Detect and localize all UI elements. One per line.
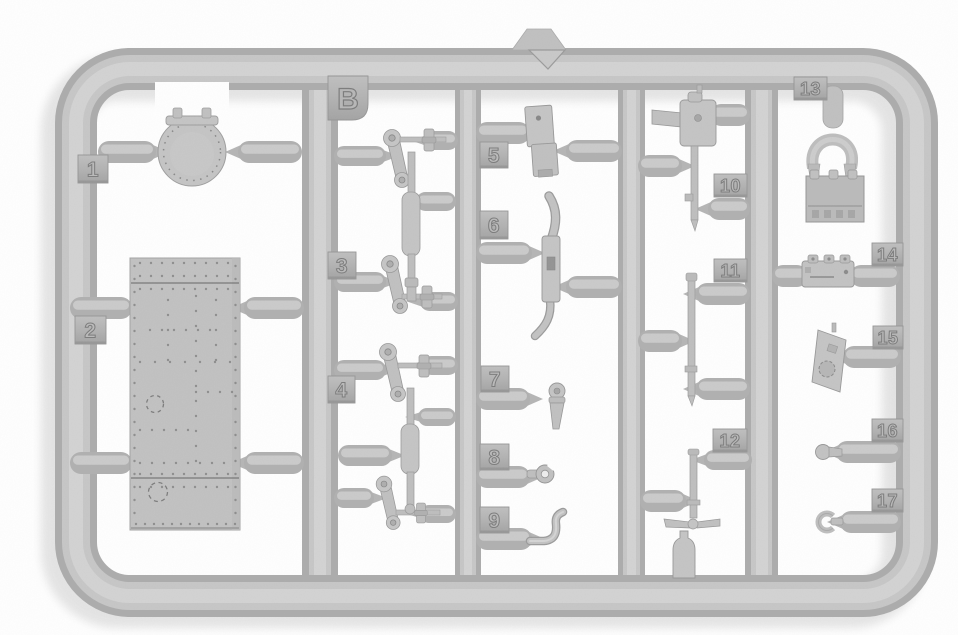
part-tag-5: 5 bbox=[480, 142, 508, 168]
rivet bbox=[205, 486, 207, 488]
rivet bbox=[161, 329, 163, 331]
rivet bbox=[139, 288, 141, 290]
part-17-hook bbox=[818, 514, 843, 531]
part-tag-6: 6 bbox=[480, 211, 508, 239]
rivet bbox=[175, 429, 177, 431]
rivet bbox=[199, 462, 201, 464]
rivet bbox=[195, 430, 197, 432]
part-tag-number: 4 bbox=[335, 379, 347, 402]
gate-stub-highlight bbox=[713, 108, 747, 117]
rivet bbox=[195, 310, 197, 312]
rivet bbox=[234, 278, 236, 280]
rivet bbox=[161, 486, 163, 488]
rivet bbox=[234, 395, 236, 397]
rivet bbox=[172, 486, 174, 488]
rivet bbox=[163, 462, 165, 464]
part-tag-number: 9 bbox=[488, 510, 500, 533]
gate-stub-highlight bbox=[643, 494, 683, 503]
rivet bbox=[205, 275, 207, 277]
rivet bbox=[195, 385, 197, 387]
rivet bbox=[234, 523, 236, 525]
rivet bbox=[133, 512, 135, 514]
rivet bbox=[216, 523, 218, 525]
rivet bbox=[161, 473, 163, 475]
gate-stub-highlight bbox=[843, 515, 898, 524]
rivet bbox=[234, 421, 236, 423]
rivet bbox=[183, 288, 185, 290]
rivet bbox=[195, 325, 197, 327]
rivet bbox=[195, 415, 197, 417]
rivet bbox=[195, 340, 197, 342]
gate-stub-highlight bbox=[641, 334, 679, 343]
rivet bbox=[198, 523, 200, 525]
gate-stub bbox=[638, 155, 695, 177]
rivet bbox=[234, 382, 236, 384]
gate-stub bbox=[231, 297, 304, 319]
rivet bbox=[151, 429, 153, 431]
rivet bbox=[133, 460, 135, 462]
rivet bbox=[150, 486, 152, 488]
rivet bbox=[133, 291, 135, 293]
runner-vertical-1 bbox=[302, 58, 338, 608]
rivet bbox=[234, 408, 236, 410]
part-tag-12: 12 bbox=[713, 429, 747, 452]
gate-stub-highlight bbox=[337, 150, 383, 158]
rivet bbox=[187, 429, 189, 431]
rivet bbox=[133, 447, 135, 449]
part-tag-number: 13 bbox=[800, 79, 821, 99]
runner-vertical-3 bbox=[618, 58, 645, 608]
sheet-label-tag: B bbox=[328, 76, 368, 120]
rivet bbox=[227, 275, 229, 277]
rivet bbox=[195, 355, 197, 357]
rivet bbox=[205, 262, 207, 264]
rivet bbox=[133, 330, 135, 332]
rivet bbox=[162, 523, 164, 525]
rivet bbox=[225, 523, 227, 525]
rivet bbox=[195, 445, 197, 447]
rivet bbox=[149, 329, 151, 331]
rivet bbox=[216, 288, 218, 290]
part-tag-16: 16 bbox=[872, 419, 903, 442]
rivet bbox=[139, 462, 141, 464]
push-rod-lower bbox=[401, 388, 419, 514]
sprue-render: 1234567891011121314151617 B bbox=[0, 0, 958, 635]
part-tag-15: 15 bbox=[873, 326, 903, 349]
gate-stub bbox=[334, 488, 387, 508]
rivet bbox=[133, 473, 135, 475]
gate-stub-highlight bbox=[569, 144, 619, 153]
rivet bbox=[167, 329, 169, 331]
rivet bbox=[133, 382, 135, 384]
rivet bbox=[185, 329, 187, 331]
rivet bbox=[133, 408, 135, 410]
rivet bbox=[234, 447, 236, 449]
rivet bbox=[207, 391, 209, 393]
gate-stub-highlight bbox=[337, 492, 371, 500]
rivet bbox=[234, 291, 236, 293]
rivet bbox=[234, 356, 236, 358]
gate-stub-highlight bbox=[101, 145, 153, 154]
rivet bbox=[139, 473, 141, 475]
rivet bbox=[234, 304, 236, 306]
rivet bbox=[216, 262, 218, 264]
rivet bbox=[167, 299, 169, 301]
rivet bbox=[234, 343, 236, 345]
rivet bbox=[133, 395, 135, 397]
rivet bbox=[173, 329, 175, 331]
gate-stub-highlight bbox=[479, 470, 527, 479]
rivet bbox=[195, 391, 197, 393]
rivet bbox=[150, 288, 152, 290]
part-tag-number: 14 bbox=[877, 245, 898, 265]
part-tag-3: 3 bbox=[328, 252, 356, 279]
rivet bbox=[234, 434, 236, 436]
gate-stub bbox=[476, 242, 545, 264]
rivet bbox=[175, 462, 177, 464]
rivet bbox=[195, 295, 197, 297]
gate-stub bbox=[231, 452, 304, 474]
part-2-plate bbox=[130, 258, 240, 530]
rivet bbox=[167, 314, 169, 316]
rivet bbox=[227, 262, 229, 264]
part-tag-2: 2 bbox=[75, 316, 106, 344]
rivet bbox=[133, 434, 135, 436]
rivet bbox=[133, 317, 135, 319]
rivet bbox=[234, 499, 236, 501]
rivet bbox=[183, 275, 185, 277]
runner-vertical-4 bbox=[745, 58, 778, 608]
part-15-gauge-plate bbox=[812, 323, 846, 392]
gate-stub-highlight bbox=[846, 350, 898, 359]
rivet bbox=[219, 391, 221, 393]
rivet bbox=[194, 288, 196, 290]
part-tag-number: 11 bbox=[720, 261, 740, 281]
gate-stub-highlight bbox=[341, 449, 389, 458]
rivet bbox=[195, 460, 197, 462]
rivet bbox=[171, 523, 173, 525]
rivet bbox=[139, 361, 141, 363]
rivet bbox=[234, 460, 236, 462]
rivet bbox=[234, 330, 236, 332]
gate-stub-highlight bbox=[699, 287, 747, 296]
gate-stub-highlight bbox=[337, 364, 383, 372]
rivet bbox=[216, 473, 218, 475]
gate-stub bbox=[638, 330, 695, 352]
rivet bbox=[133, 499, 135, 501]
rivet bbox=[133, 304, 135, 306]
rivet bbox=[234, 317, 236, 319]
rivet bbox=[169, 361, 171, 363]
rivet bbox=[144, 523, 146, 525]
clevis-part bbox=[415, 503, 428, 523]
part-13-grille bbox=[806, 86, 864, 222]
rivet bbox=[227, 288, 229, 290]
part-tag-number: 3 bbox=[336, 255, 348, 278]
part-tag-number: 15 bbox=[877, 328, 898, 348]
rivet bbox=[161, 288, 163, 290]
rivet bbox=[215, 299, 217, 301]
rivet bbox=[167, 344, 169, 346]
gate-stub-highlight bbox=[479, 246, 529, 255]
rivet bbox=[183, 486, 185, 488]
rivet bbox=[151, 462, 153, 464]
rivet bbox=[139, 486, 141, 488]
part-tag-17: 17 bbox=[872, 489, 903, 512]
rivet bbox=[133, 421, 135, 423]
rivet bbox=[229, 361, 231, 363]
rivet bbox=[234, 473, 236, 475]
part-tag-number: 12 bbox=[719, 431, 740, 451]
part-tag-number: 8 bbox=[488, 447, 500, 470]
gate-stub bbox=[695, 198, 750, 220]
clevis-part bbox=[417, 355, 431, 377]
rivet bbox=[153, 523, 155, 525]
gate-stub bbox=[338, 445, 405, 466]
gate-stub bbox=[553, 276, 622, 298]
rivet bbox=[163, 429, 165, 431]
gate-stub bbox=[225, 141, 302, 163]
part-7-knob bbox=[549, 383, 565, 429]
part-tag-number: 16 bbox=[877, 421, 898, 441]
part-6-lever-arm bbox=[535, 196, 560, 336]
rivet bbox=[215, 314, 217, 316]
rivet bbox=[223, 462, 225, 464]
rivet bbox=[154, 361, 156, 363]
part-tag-number: 2 bbox=[84, 320, 96, 343]
rivet bbox=[227, 473, 229, 475]
part-tag-14: 14 bbox=[872, 243, 903, 266]
rivet bbox=[172, 275, 174, 277]
part-tag-11: 11 bbox=[714, 259, 747, 282]
rivet bbox=[207, 523, 209, 525]
rivet bbox=[172, 288, 174, 290]
part-tag-number: 10 bbox=[720, 176, 741, 196]
part-tag-9: 9 bbox=[480, 507, 509, 533]
rivet bbox=[187, 462, 189, 464]
part-14-hinge-block bbox=[802, 255, 854, 287]
rivet bbox=[215, 359, 217, 361]
part-tag-13: 13 bbox=[794, 77, 827, 100]
runner-vertical-2 bbox=[455, 58, 481, 608]
rivet bbox=[161, 275, 163, 277]
rivet bbox=[139, 275, 141, 277]
gate-stub-highlight bbox=[73, 456, 129, 465]
part-tag-1: 1 bbox=[78, 155, 108, 183]
gate-stub-highlight bbox=[247, 301, 301, 310]
part-tag-7: 7 bbox=[481, 366, 509, 392]
part-tag-number: 1 bbox=[87, 159, 99, 182]
gate-stub-highlight bbox=[853, 269, 897, 278]
part-tag-number: 6 bbox=[488, 215, 500, 238]
rivet bbox=[215, 344, 217, 346]
part-5-bracket bbox=[525, 105, 559, 178]
part-1-hatch bbox=[155, 82, 229, 186]
gate-stub-highlight bbox=[479, 126, 527, 135]
rivet bbox=[150, 262, 152, 264]
rivet bbox=[133, 278, 135, 280]
clevis-part bbox=[422, 129, 436, 151]
rivet bbox=[195, 400, 197, 402]
rivet bbox=[234, 369, 236, 371]
rivet bbox=[180, 523, 182, 525]
rivet bbox=[234, 512, 236, 514]
part-tag-number: 7 bbox=[489, 369, 501, 392]
lever-part bbox=[376, 476, 400, 529]
rivet bbox=[211, 462, 213, 464]
rivet bbox=[205, 473, 207, 475]
rivet bbox=[133, 486, 135, 488]
rivet bbox=[216, 486, 218, 488]
part-tag-10: 10 bbox=[714, 174, 747, 197]
rivet bbox=[199, 361, 201, 363]
rivet bbox=[189, 523, 191, 525]
gate-stub-highlight bbox=[421, 412, 453, 420]
gate-stub bbox=[691, 450, 752, 470]
rivet bbox=[209, 329, 211, 331]
gate-stub-highlight bbox=[73, 301, 129, 310]
gate-stub-highlight bbox=[241, 145, 299, 154]
rivet bbox=[194, 275, 196, 277]
rivet bbox=[194, 486, 196, 488]
gate-stub-highlight bbox=[775, 269, 805, 278]
rivet bbox=[205, 288, 207, 290]
rivet bbox=[150, 275, 152, 277]
rivet bbox=[133, 343, 135, 345]
part-tag-number: 17 bbox=[877, 491, 898, 511]
linkage-cluster bbox=[376, 129, 446, 530]
rivet bbox=[231, 391, 233, 393]
gate-stub bbox=[553, 140, 622, 162]
rivet bbox=[133, 356, 135, 358]
rivet bbox=[227, 486, 229, 488]
rivet bbox=[139, 262, 141, 264]
rivet bbox=[184, 361, 186, 363]
part-tag-8: 8 bbox=[480, 444, 509, 470]
sheet-label-text: B bbox=[337, 83, 359, 116]
gate-stub-highlight bbox=[699, 382, 747, 391]
rivet bbox=[172, 262, 174, 264]
rivet bbox=[133, 265, 135, 267]
rivet bbox=[197, 329, 199, 331]
gate-stub-highlight bbox=[247, 456, 301, 465]
rivet bbox=[150, 473, 152, 475]
rivet bbox=[234, 486, 236, 488]
rivet bbox=[183, 473, 185, 475]
part-tag-number: 5 bbox=[488, 145, 500, 168]
rivet bbox=[133, 369, 135, 371]
gate-stub-highlight bbox=[707, 454, 749, 462]
rivet bbox=[234, 265, 236, 267]
rivet bbox=[135, 523, 137, 525]
rivet bbox=[183, 262, 185, 264]
rivet bbox=[216, 275, 218, 277]
rivet bbox=[195, 370, 197, 372]
rivet bbox=[172, 473, 174, 475]
gate-stub-highlight bbox=[839, 445, 898, 454]
rivet bbox=[161, 262, 163, 264]
gate-stub-highlight bbox=[479, 392, 527, 401]
gate-stub-highlight bbox=[711, 202, 747, 211]
part-tag-4: 4 bbox=[328, 376, 355, 403]
gate-stub-highlight bbox=[419, 196, 453, 204]
clevis-part bbox=[420, 286, 434, 308]
rivet bbox=[194, 473, 196, 475]
rivet bbox=[139, 429, 141, 431]
rivet bbox=[167, 359, 169, 361]
rivet bbox=[215, 329, 217, 331]
gate-stub-highlight bbox=[569, 280, 619, 289]
rivet bbox=[194, 262, 196, 264]
gate-stub-highlight bbox=[641, 159, 679, 168]
